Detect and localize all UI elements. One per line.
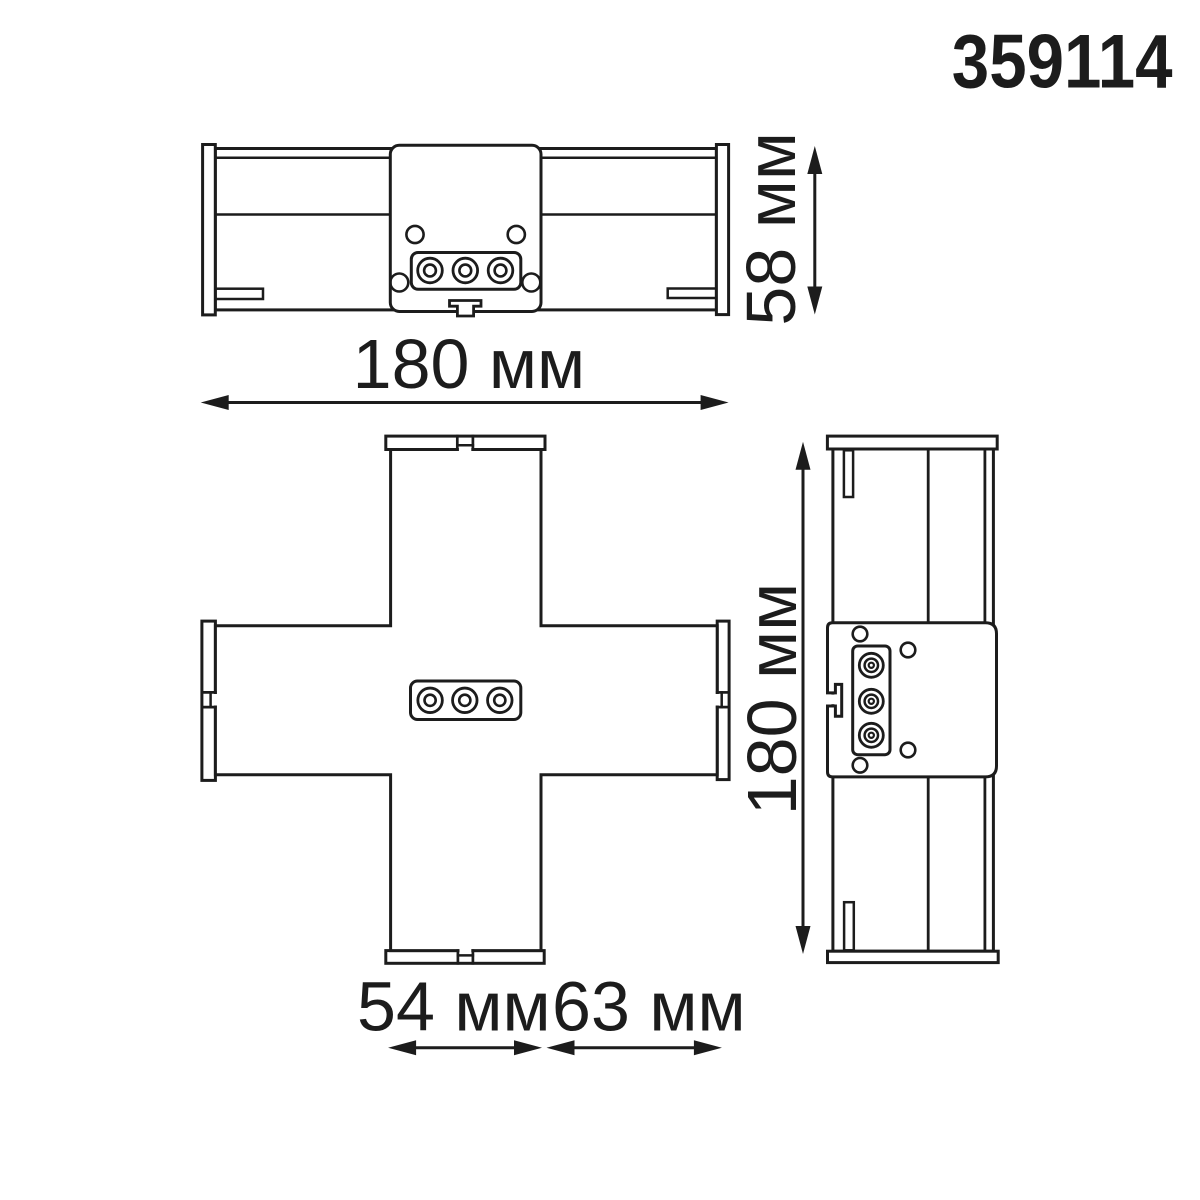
svg-text:58 мм: 58 мм <box>732 132 810 326</box>
svg-text:180 мм: 180 мм <box>353 325 586 403</box>
svg-text:63 мм: 63 мм <box>552 968 746 1046</box>
svg-text:180 мм: 180 мм <box>733 583 811 816</box>
svg-text:359114: 359114 <box>952 20 1173 105</box>
svg-text:54 мм: 54 мм <box>357 968 551 1046</box>
